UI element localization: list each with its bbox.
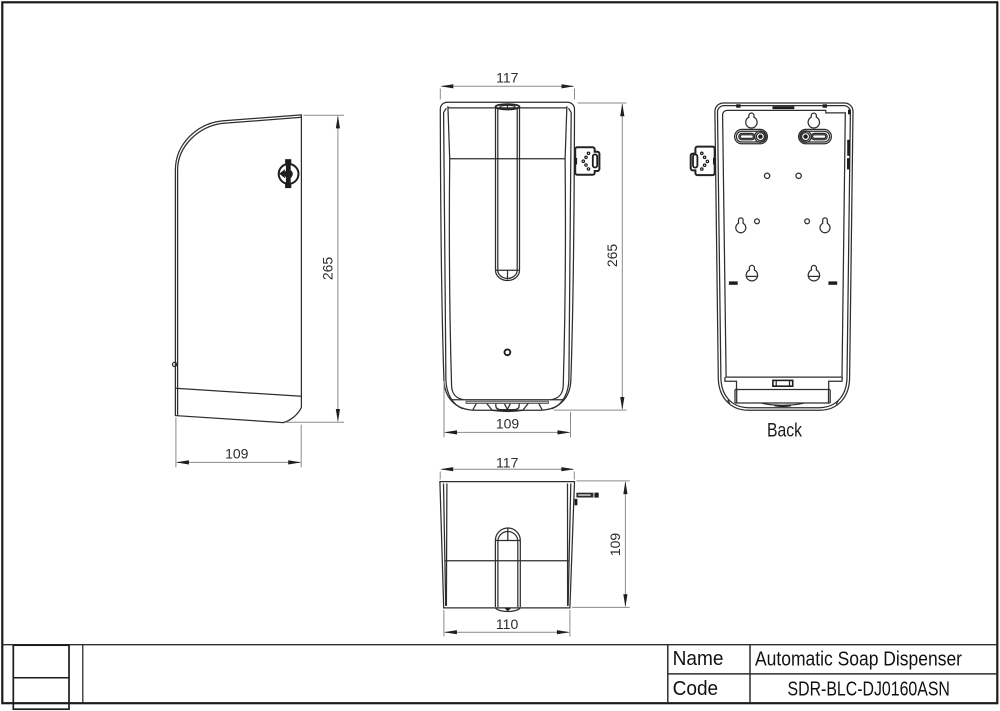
svg-text:Back: Back [767,419,802,441]
svg-text:265: 265 [320,257,336,281]
svg-text:Name: Name [673,647,724,670]
svg-text:Automatic Soap Dispenser: Automatic Soap Dispenser [755,648,963,671]
svg-text:Code: Code [673,678,719,701]
svg-text:109: 109 [496,416,520,432]
svg-text:109: 109 [225,446,249,462]
svg-text:265: 265 [604,244,620,268]
svg-text:SDR-BLC-DJ0160ASN: SDR-BLC-DJ0160ASN [788,676,950,699]
svg-text:117: 117 [496,69,519,85]
svg-text:110: 110 [496,616,519,632]
svg-text:117: 117 [496,454,519,470]
svg-text:109: 109 [607,533,623,557]
